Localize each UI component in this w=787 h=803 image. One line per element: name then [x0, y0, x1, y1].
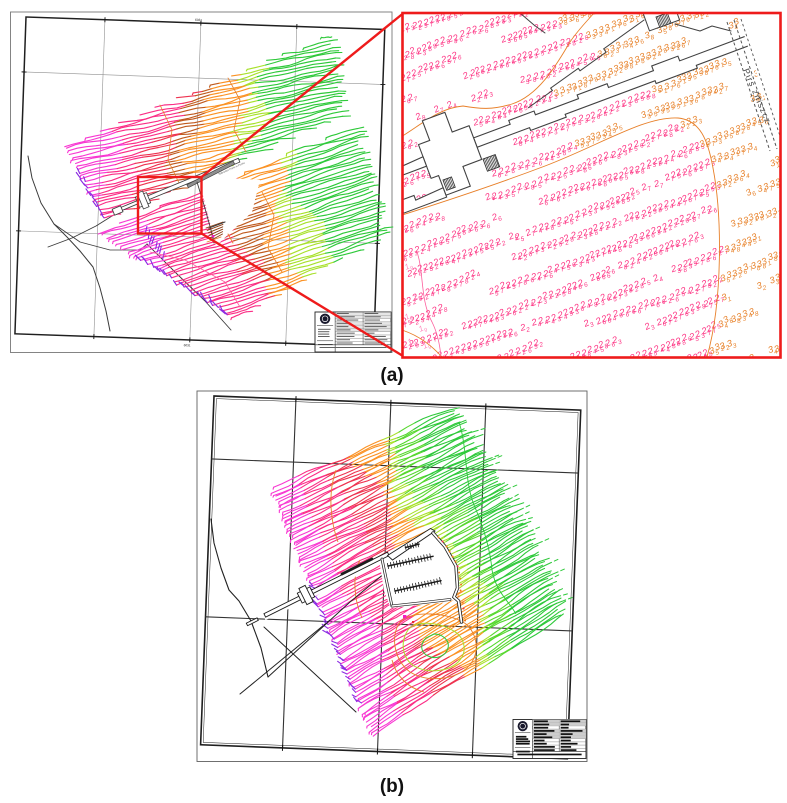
svg-text:(a): (a) [380, 365, 403, 386]
svg-text:6031: 6031 [195, 18, 202, 22]
svg-text:6031: 6031 [184, 343, 191, 347]
svg-text:(b): (b) [380, 776, 404, 797]
